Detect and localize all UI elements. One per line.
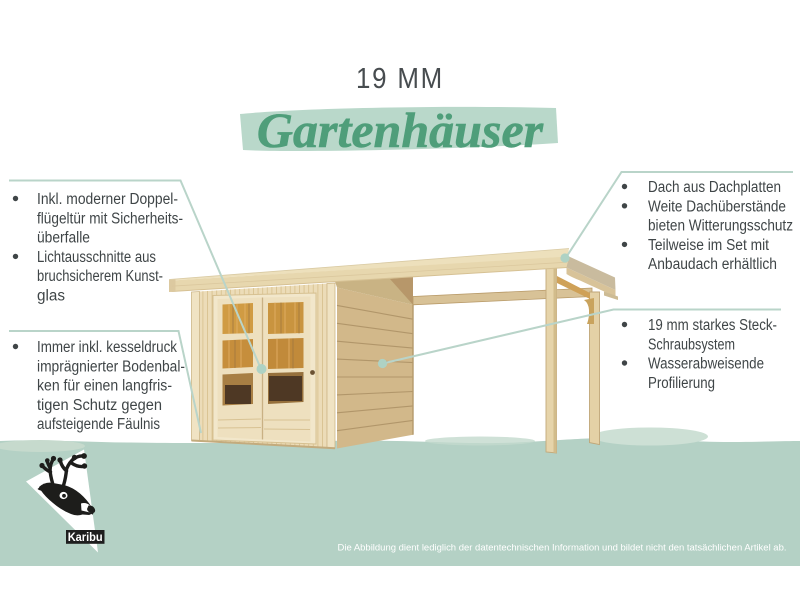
svg-text:Profilierung: Profilierung [648, 375, 715, 392]
svg-text:Anbaudach erhältlich: Anbaudach erhältlich [648, 256, 777, 273]
svg-text:Lichtausschnitte aus: Lichtausschnitte aus [37, 249, 156, 266]
svg-text:Inkl. moderner Doppel-: Inkl. moderner Doppel- [37, 191, 178, 208]
svg-text:aufsteigende Fäulnis: aufsteigende Fäulnis [37, 416, 160, 433]
svg-text:19 MM: 19 MM [356, 63, 444, 95]
svg-text:tigen Schutz gegen: tigen Schutz gegen [37, 397, 162, 414]
svg-text:Teilweise im Set mit: Teilweise im Set mit [648, 237, 770, 254]
svg-text:Karibu: Karibu [68, 530, 103, 544]
svg-text:imprägnierter Bodenbal-: imprägnierter Bodenbal- [37, 358, 185, 375]
svg-text:ken für einen langfris-: ken für einen langfris- [37, 378, 172, 395]
svg-text:Die Abbildung dient lediglich: Die Abbildung dient lediglich der datent… [338, 543, 787, 553]
svg-text:Weite Dachüberstände: Weite Dachüberstände [648, 198, 786, 215]
svg-text:überfalle: überfalle [37, 230, 90, 247]
svg-text:bruchsicherem Kunst-: bruchsicherem Kunst- [37, 268, 163, 285]
svg-text:Immer inkl. kesseldruck: Immer inkl. kesseldruck [37, 339, 177, 356]
svg-text:19 mm starkes Steck-: 19 mm starkes Steck- [648, 317, 777, 334]
svg-text:glas: glas [37, 288, 65, 305]
svg-text:flügeltür mit Sicherheits-: flügeltür mit Sicherheits- [37, 210, 183, 227]
svg-text:Wasserabweisende: Wasserabweisende [648, 356, 764, 373]
svg-text:bieten Witterungsschutz: bieten Witterungsschutz [648, 218, 793, 235]
svg-text:Schraubsystem: Schraubsystem [648, 336, 735, 353]
svg-text:Dach aus Dachplatten: Dach aus Dachplatten [648, 179, 781, 196]
svg-text:Gartenhäuser: Gartenhäuser [257, 102, 544, 158]
